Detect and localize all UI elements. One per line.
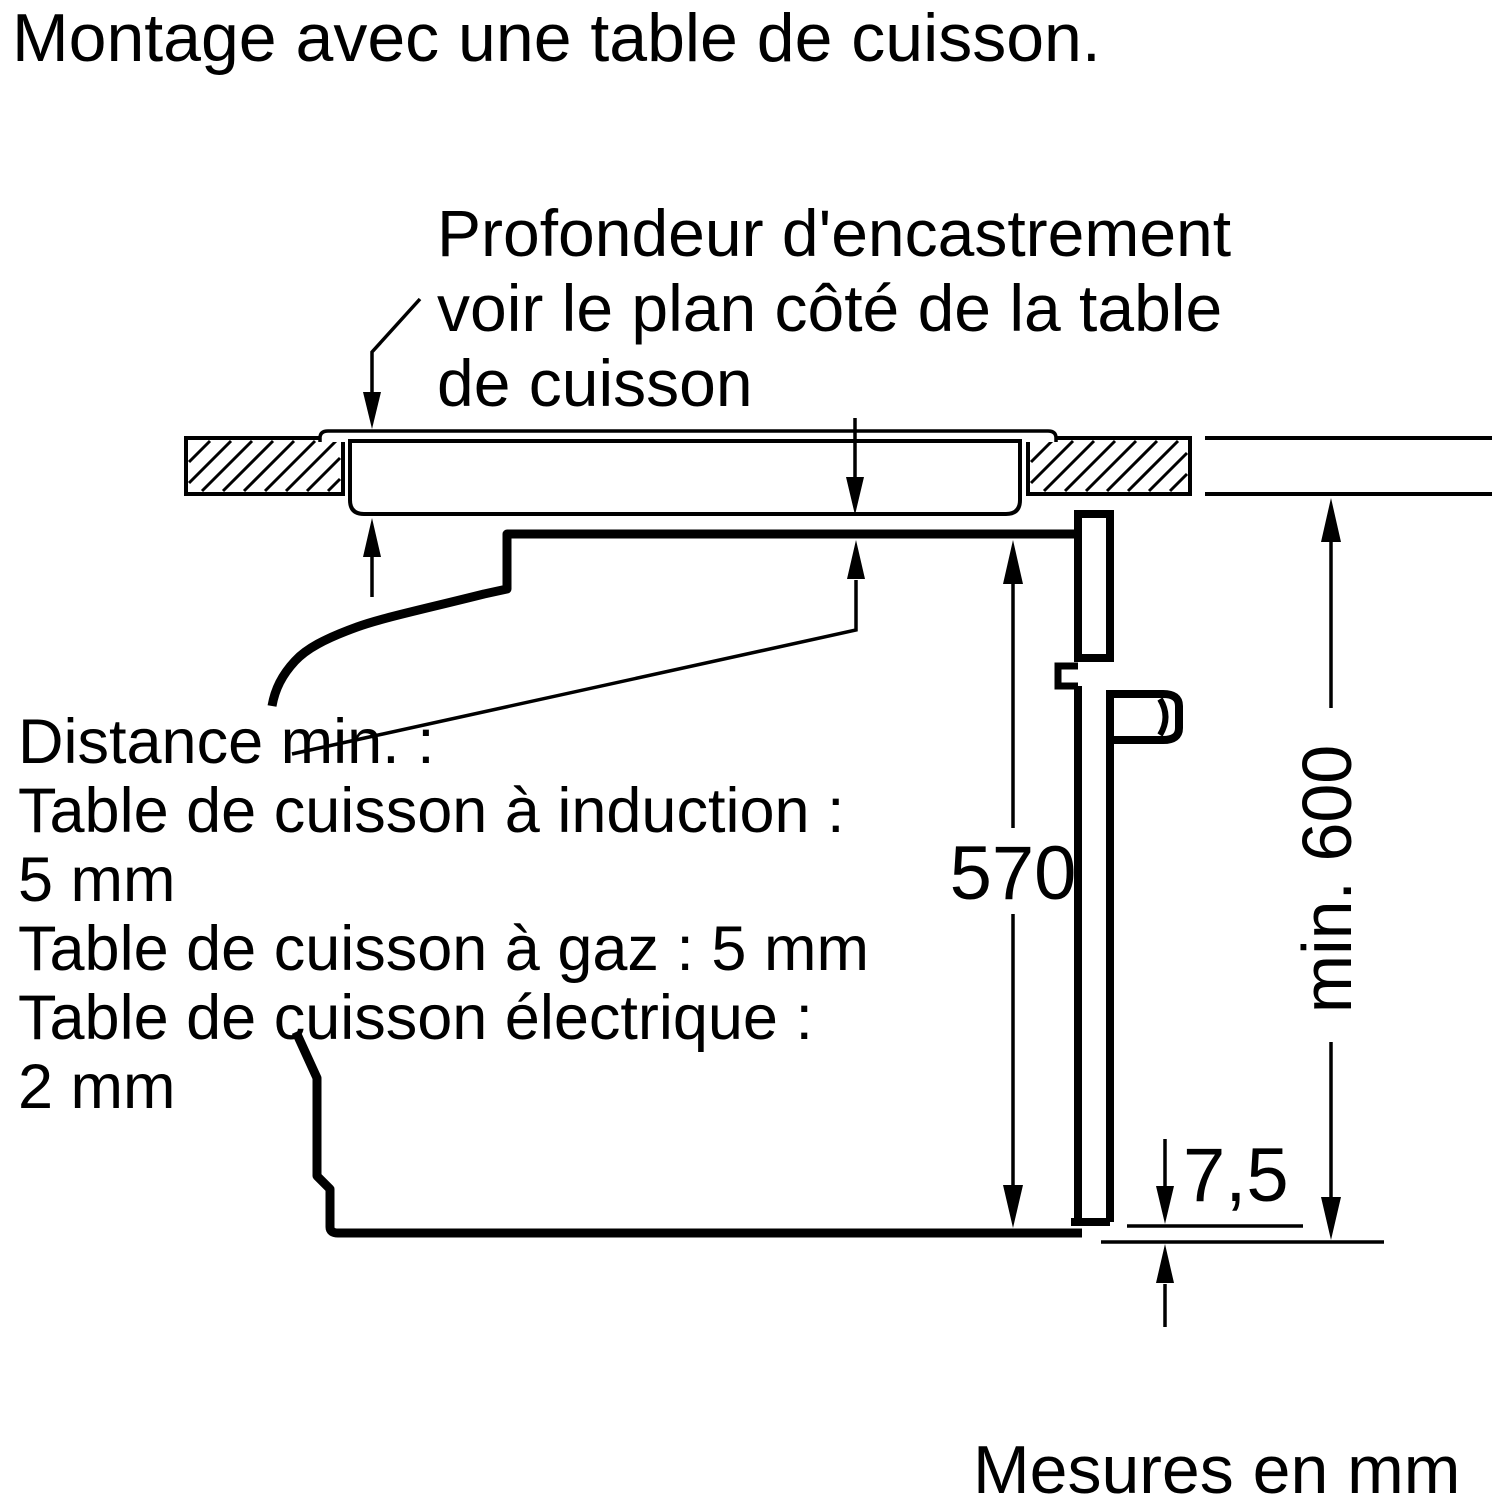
units-note: Mesures en mm [973,1434,1460,1500]
arrowhead-down-icon [1003,1185,1023,1228]
arrowhead-down-icon [1321,1197,1341,1240]
note-line: Table de cuisson électrique : [18,984,869,1053]
oven-top-edge [272,534,1078,706]
door-front-panel [1071,686,1110,1222]
countertop-left-block [186,438,343,494]
note-line: 5 mm [18,846,869,915]
arrowhead-down-icon [1156,1186,1174,1224]
note-line: Table de cuisson à gaz : 5 mm [18,915,869,984]
door-handle [1110,694,1179,740]
door-top-panel [1078,514,1110,658]
leader-encastrement-left [363,299,420,429]
arrowhead-up-icon [1003,540,1023,584]
note-line: Distance min. : [18,708,869,777]
cooktop-profile [320,431,1056,514]
annotation-line: voir le plan côté de la table [437,271,1231,346]
annotation-encastrement: Profondeur d'encastrement voir le plan c… [437,196,1231,421]
dimension-label-min-600: min. 600 [1290,745,1364,1013]
arrowhead-up-icon [1321,498,1341,542]
distance-min-notes: Distance min. : Table de cuisson à induc… [18,708,869,1122]
page-title: Montage avec une table de cuisson. [12,2,1101,74]
door-hinge-tab [1058,666,1078,686]
arrowhead-up-icon [1156,1244,1174,1283]
installation-diagram-page: Montage avec une table de cuisson. Profo… [0,0,1496,1500]
arrowhead-up-icon [847,540,865,579]
arrowhead-up-icon [363,518,381,557]
annotation-line: Profondeur d'encastrement [437,196,1231,271]
arrowhead-down-icon [363,392,381,429]
door-handle-endcap [1160,699,1166,735]
gap-arrow-left [363,518,381,597]
cooktop-body [350,441,1020,514]
note-line: 2 mm [18,1053,869,1122]
leader-line [372,299,420,393]
note-line: Table de cuisson à induction : [18,777,869,846]
dimension-label-570: 570 [938,834,1088,914]
dimension-label-7-5: 7,5 [1183,1136,1289,1216]
annotation-line: de cuisson [437,346,1231,421]
